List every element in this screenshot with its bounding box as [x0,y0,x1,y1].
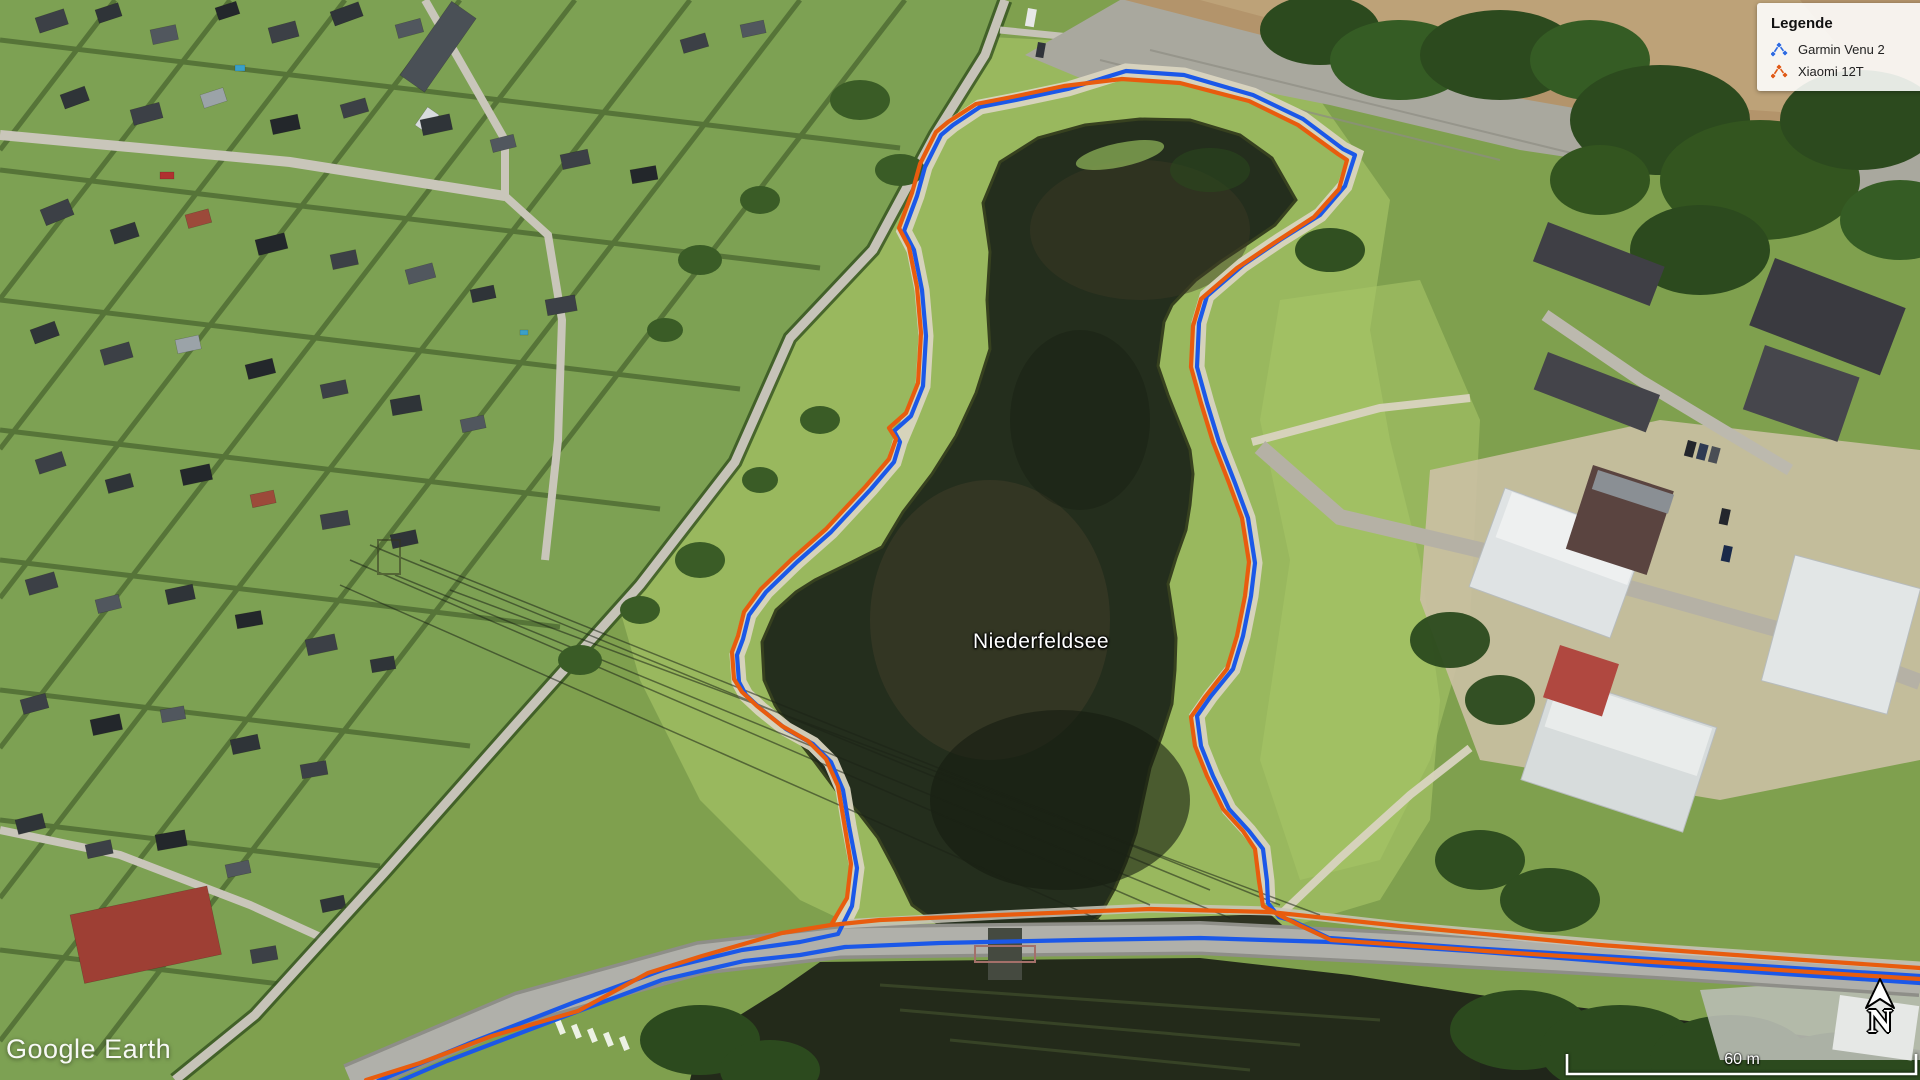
google-earth-viewport[interactable]: Niederfeldsee Legende Garmin Venu 2Xiaom… [0,0,1920,1080]
legend-item-label: Xiaomi 12T [1798,64,1864,79]
scale-bar-label: 60 m [1564,1051,1920,1069]
legend-panel: Legende Garmin Venu 2Xiaomi 12T [1757,3,1920,91]
google-earth-watermark: Google Earth [6,1034,171,1065]
legend-items: Garmin Venu 2Xiaomi 12T [1771,42,1917,79]
legend-item-label: Garmin Venu 2 [1798,42,1885,57]
north-indicator[interactable]: N [1856,977,1904,1037]
satellite-map[interactable] [0,0,1920,1080]
track-path-icon [1771,64,1789,79]
scale-bar: 60 m [1564,1048,1920,1078]
legend-item-xiaomi-12t: Xiaomi 12T [1771,64,1917,79]
track-path-icon [1771,42,1789,57]
north-letter: N [1856,1007,1904,1037]
crosswalk [555,1020,630,1051]
place-label-niederfeldsee: Niederfeldsee [973,630,1109,654]
legend-title: Legende [1771,15,1917,32]
legend-item-garmin-venu-2: Garmin Venu 2 [1771,42,1917,57]
